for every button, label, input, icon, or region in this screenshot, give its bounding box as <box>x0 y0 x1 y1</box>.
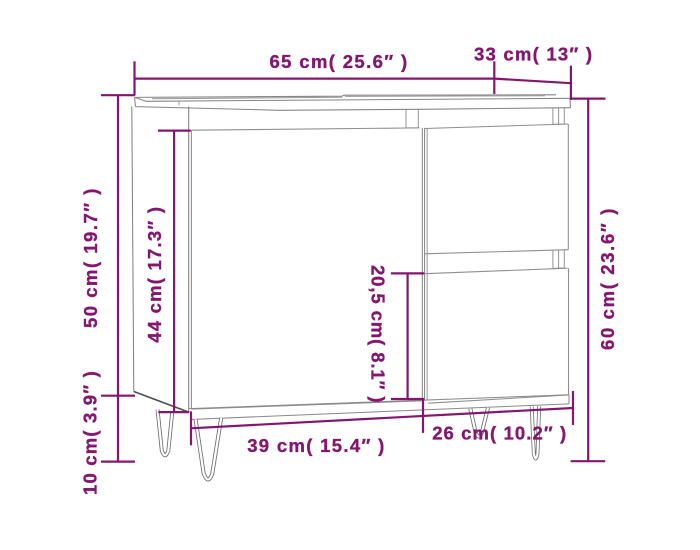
svg-text:50 cm( 19.7″ ): 50 cm( 19.7″ ) <box>80 187 101 328</box>
svg-text:33 cm( 13″ ): 33 cm( 13″ ) <box>474 43 593 64</box>
svg-text:60 cm( 23.6″ ): 60 cm( 23.6″ ) <box>597 207 618 350</box>
svg-text:26 cm( 10.2″ ): 26 cm( 10.2″ ) <box>432 423 567 444</box>
svg-text:39 cm( 15.4″ ): 39 cm( 15.4″ ) <box>247 435 385 456</box>
svg-text:44 cm( 17.3″ ): 44 cm( 17.3″ ) <box>144 206 165 343</box>
svg-text:65 cm( 25.6″ ): 65 cm( 25.6″ ) <box>270 51 409 72</box>
svg-text:20,5 cm( 8.1″ ): 20,5 cm( 8.1″ ) <box>368 265 389 403</box>
svg-text:10 cm( 3.9″ ): 10 cm( 3.9″ ) <box>80 370 101 495</box>
